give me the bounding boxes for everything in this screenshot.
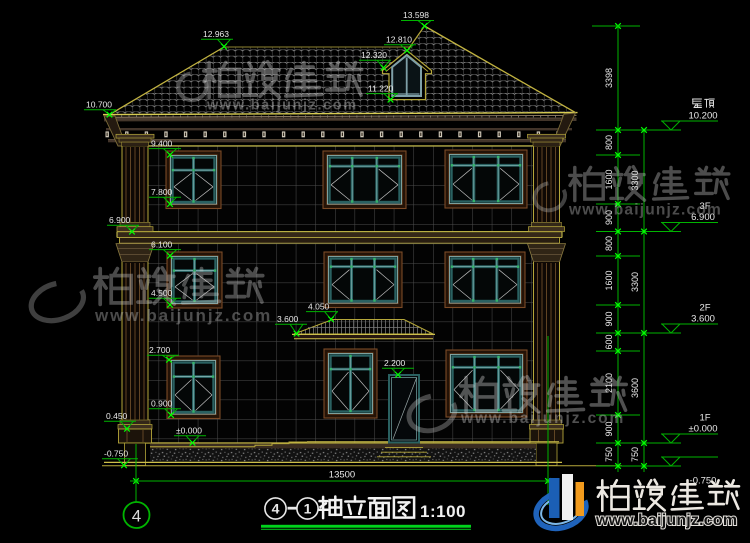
svg-text:7.800: 7.800: [151, 187, 173, 197]
svg-text:3300: 3300: [630, 272, 640, 292]
svg-text:800: 800: [604, 236, 614, 251]
svg-text:800: 800: [604, 135, 614, 150]
svg-text:4: 4: [132, 507, 141, 526]
svg-text:2.200: 2.200: [384, 358, 406, 368]
svg-text:10.700: 10.700: [86, 100, 112, 110]
svg-text:9.400: 9.400: [151, 139, 173, 149]
svg-text:2F: 2F: [699, 303, 710, 314]
svg-text:750: 750: [630, 447, 640, 462]
svg-text:www.baijunjz.com: www.baijunjz.com: [568, 202, 722, 219]
svg-text:900: 900: [604, 311, 614, 326]
svg-text:13500: 13500: [329, 470, 355, 481]
svg-text:4: 4: [272, 501, 280, 517]
svg-text:±0.000: ±0.000: [176, 426, 202, 436]
svg-text:www.baijunjz.com: www.baijunjz.com: [460, 410, 625, 427]
svg-text:6.100: 6.100: [151, 240, 173, 250]
svg-text:12.963: 12.963: [203, 29, 229, 39]
svg-text:600: 600: [604, 334, 614, 349]
svg-text:www.baijunjz.com: www.baijunjz.com: [94, 306, 272, 325]
svg-text:3398: 3398: [604, 68, 614, 88]
svg-text:3.600: 3.600: [277, 314, 299, 324]
svg-text:±0.000: ±0.000: [689, 424, 718, 435]
svg-text:-0.750: -0.750: [104, 449, 128, 459]
svg-text:4.050: 4.050: [308, 302, 330, 312]
svg-text:11.220: 11.220: [368, 84, 394, 94]
svg-text:www.baijunjz.com: www.baijunjz.com: [206, 98, 358, 114]
svg-text:12.810: 12.810: [386, 35, 412, 45]
svg-text:0.900: 0.900: [151, 399, 173, 409]
svg-text:1: 1: [304, 501, 312, 517]
svg-text:1600: 1600: [604, 270, 614, 290]
svg-text:13.598: 13.598: [403, 10, 429, 20]
svg-text:www.baijunjz.com: www.baijunjz.com: [595, 512, 737, 529]
svg-text:750: 750: [604, 447, 614, 462]
svg-text:1F: 1F: [699, 413, 710, 424]
svg-text:3600: 3600: [630, 378, 640, 398]
svg-text:1:100: 1:100: [420, 502, 466, 521]
svg-text:3.600: 3.600: [691, 314, 715, 325]
svg-text:10.200: 10.200: [688, 111, 717, 122]
svg-text:6.900: 6.900: [109, 215, 131, 225]
svg-text:12.320: 12.320: [361, 50, 387, 60]
svg-text:0.450: 0.450: [106, 411, 128, 421]
svg-text:2.700: 2.700: [149, 345, 171, 355]
